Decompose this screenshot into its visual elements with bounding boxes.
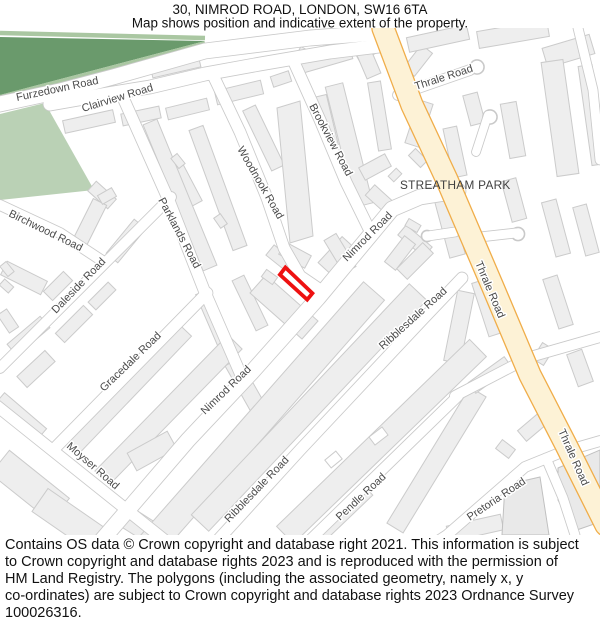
svg-text:to Crown copyright and databas: to Crown copyright and database rights 2… (5, 554, 559, 570)
svg-text:HM Land Registry. The polygons: HM Land Registry. The polygons (includin… (5, 571, 524, 587)
svg-text:100026316.: 100026316. (5, 605, 82, 621)
svg-text:Map shows position and indicat: Map shows position and indicative extent… (132, 16, 468, 31)
svg-text:co-ordinates) are subject to C: co-ordinates) are subject to Crown copyr… (5, 588, 575, 604)
svg-text:Contains OS data © Crown copyr: Contains OS data © Crown copyright and d… (5, 537, 579, 553)
svg-text:STREATHAM PARK: STREATHAM PARK (400, 178, 511, 192)
